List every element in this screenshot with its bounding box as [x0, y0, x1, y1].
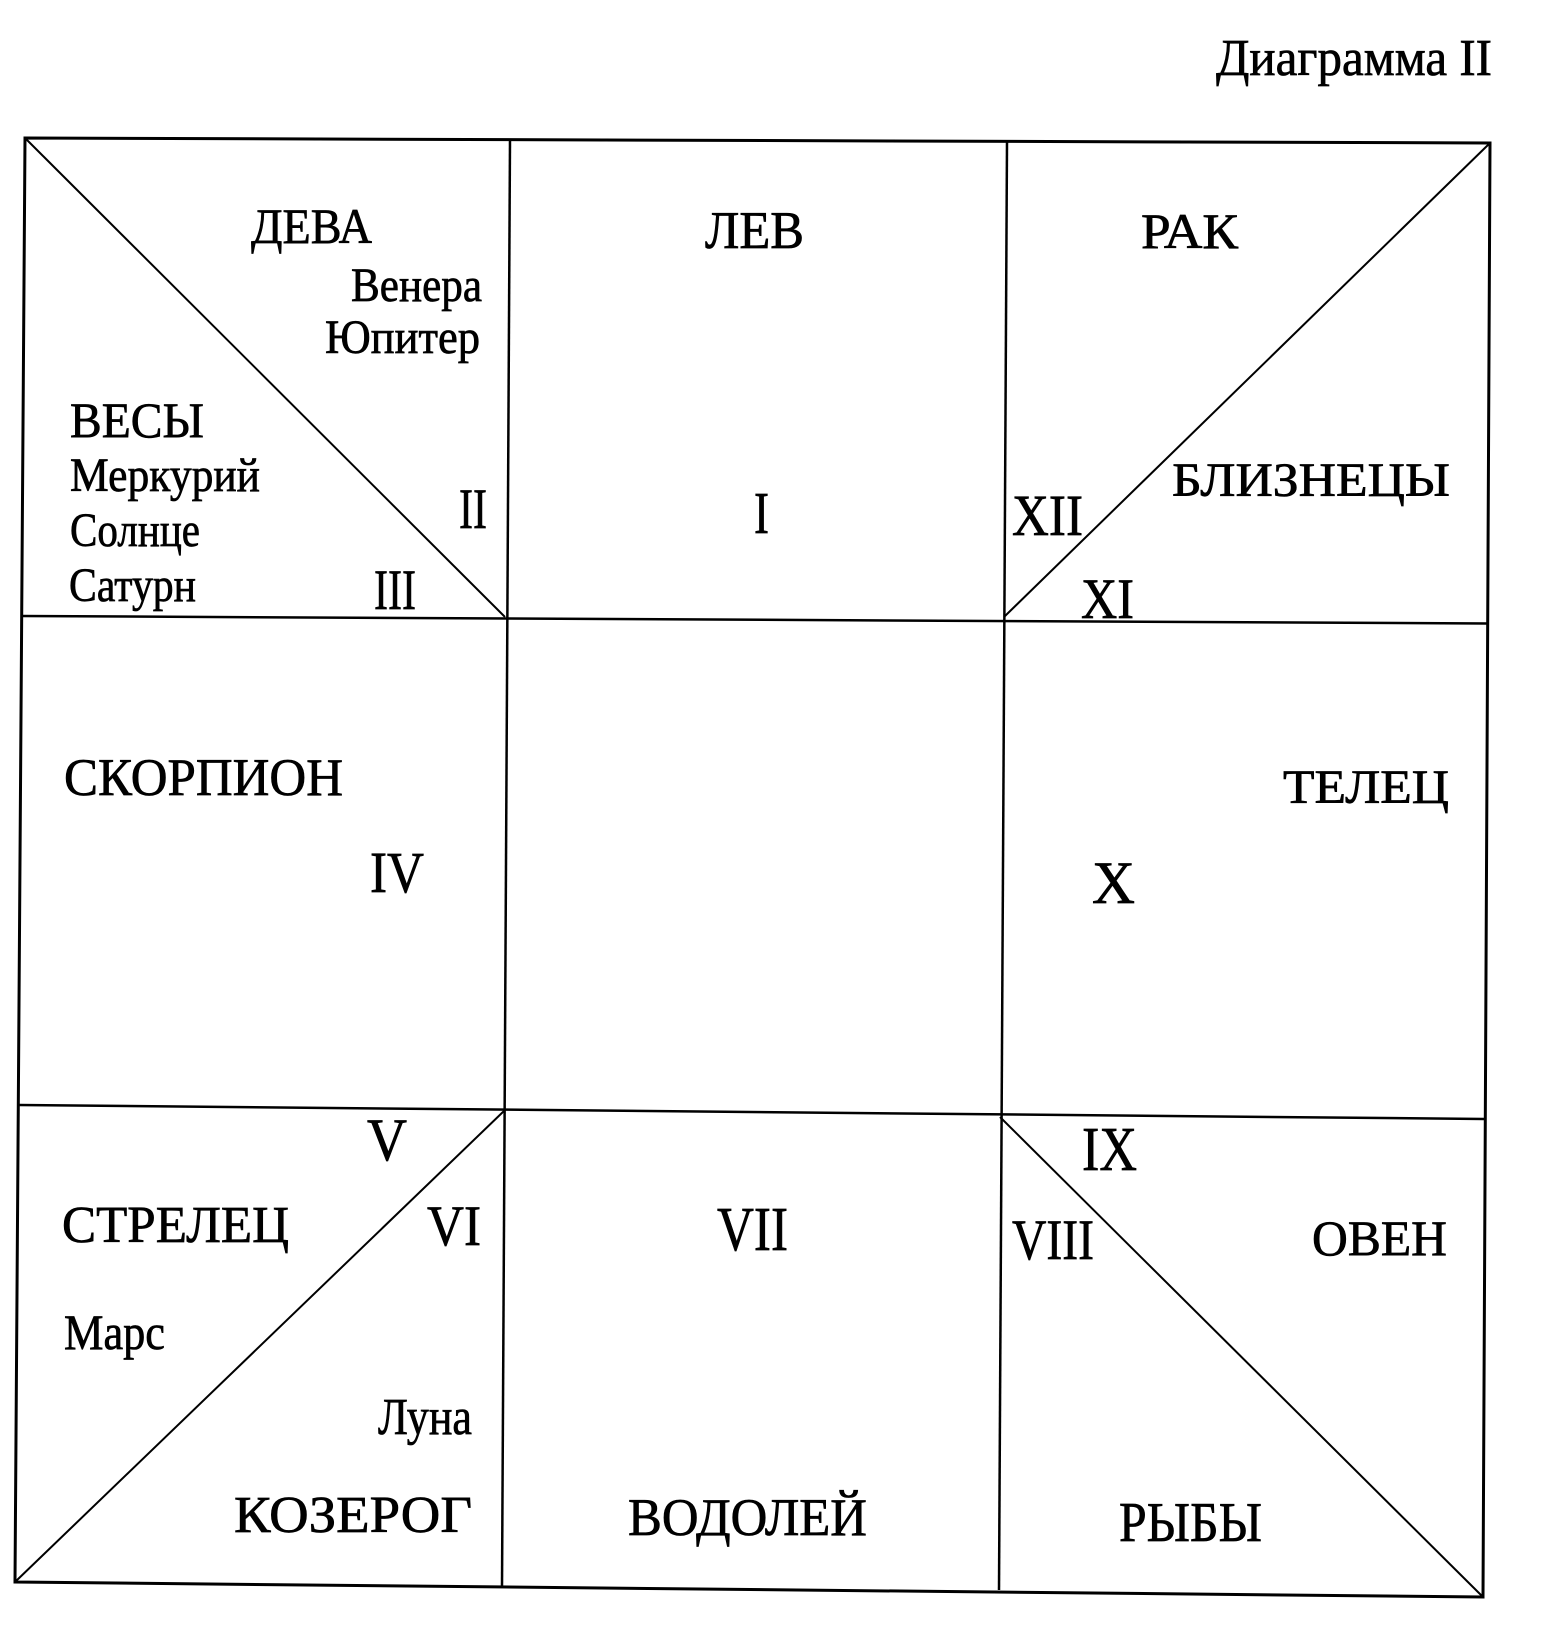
svg-text:XI: XI — [1081, 568, 1134, 631]
svg-text:XII: XII — [1012, 483, 1083, 548]
svg-text:Солнце: Солнце — [70, 504, 200, 557]
svg-text:ОВЕН: ОВЕН — [1312, 1210, 1447, 1266]
svg-text:СТРЕЛЕЦ: СТРЕЛЕЦ — [62, 1197, 289, 1254]
svg-text:V: V — [367, 1107, 407, 1173]
svg-text:Меркурий: Меркурий — [70, 449, 260, 502]
svg-text:Венера: Венера — [351, 259, 482, 312]
svg-text:ЛЕВ: ЛЕВ — [705, 202, 804, 260]
svg-text:БЛИЗНЕЦЫ: БЛИЗНЕЦЫ — [1172, 454, 1450, 507]
svg-text:РЫБЫ: РЫБЫ — [1119, 1492, 1262, 1554]
svg-text:III: III — [374, 559, 416, 622]
svg-text:СКОРПИОН: СКОРПИОН — [64, 749, 343, 807]
svg-text:ДЕВА: ДЕВА — [251, 198, 372, 254]
svg-text:Диаграмма II: Диаграмма II — [1216, 30, 1492, 87]
svg-text:КОЗЕРОГ: КОЗЕРОГ — [234, 1487, 472, 1544]
svg-text:ТЕЛЕЦ: ТЕЛЕЦ — [1283, 761, 1449, 814]
svg-text:X: X — [1092, 850, 1135, 916]
svg-text:IX: IX — [1082, 1116, 1137, 1184]
svg-text:Марс: Марс — [64, 1304, 165, 1360]
svg-text:VIII: VIII — [1012, 1209, 1094, 1272]
svg-text:IV: IV — [370, 840, 424, 905]
svg-text:VI: VI — [427, 1195, 481, 1258]
svg-text:Луна: Луна — [378, 1389, 472, 1446]
svg-text:Юпитер: Юпитер — [325, 311, 480, 364]
svg-text:ВЕСЫ: ВЕСЫ — [70, 392, 204, 448]
svg-text:Сатурн: Сатурн — [69, 559, 196, 612]
svg-text:II: II — [459, 478, 487, 541]
svg-text:ВОДОЛЕЙ: ВОДОЛЕЙ — [628, 1489, 867, 1547]
svg-text:I: I — [754, 480, 769, 546]
svg-text:VII: VII — [717, 1196, 788, 1264]
svg-text:РАК: РАК — [1141, 203, 1239, 259]
